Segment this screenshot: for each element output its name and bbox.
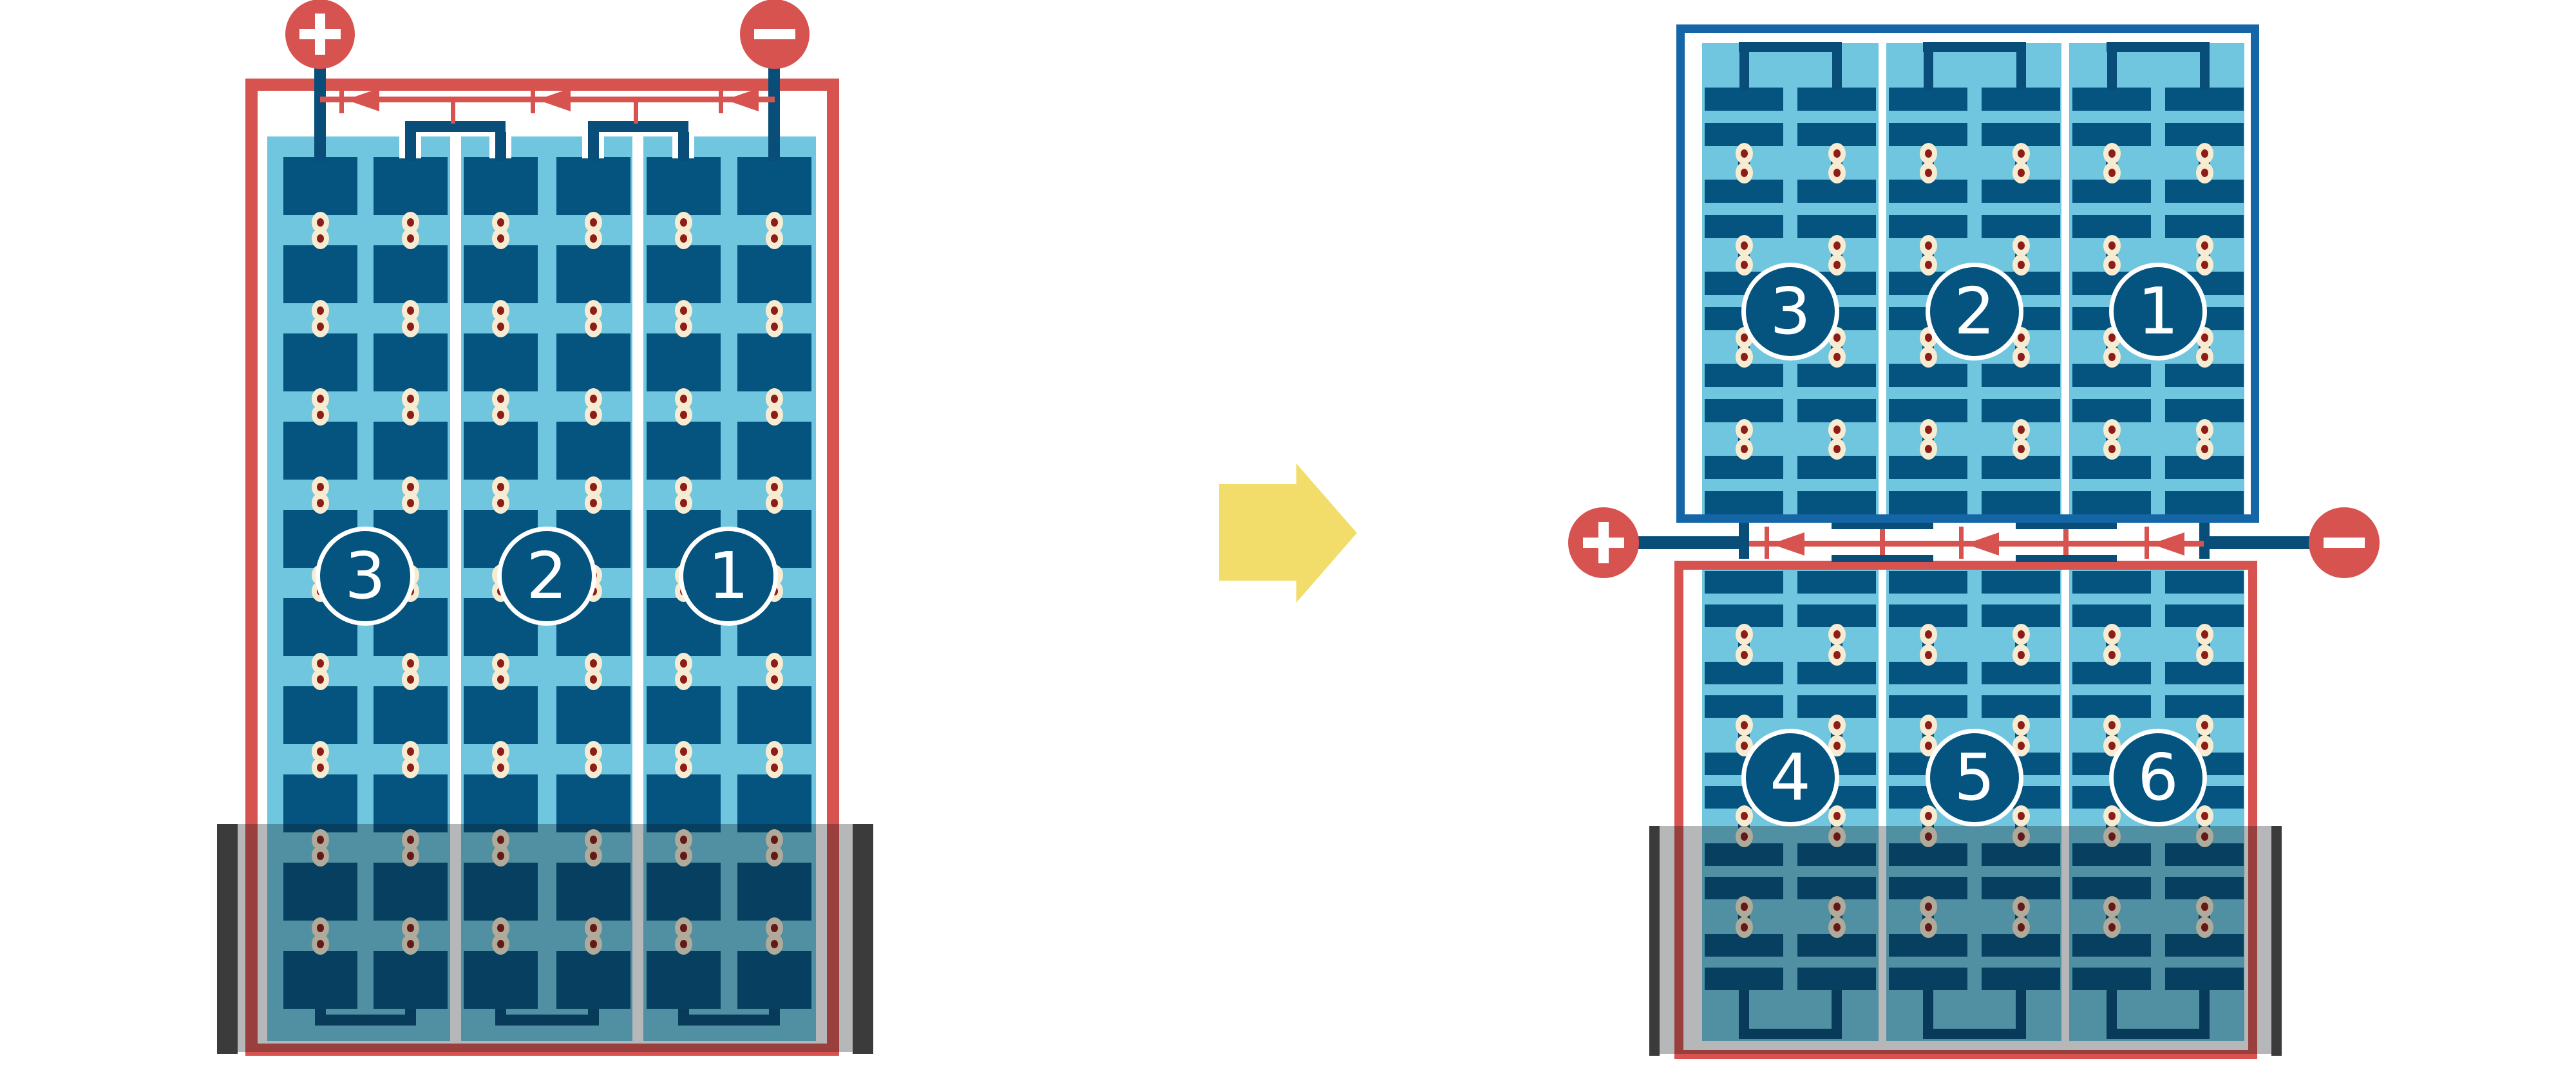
positive-terminal <box>1568 507 1639 578</box>
negative-terminal <box>2309 507 2380 578</box>
junction-end-tab <box>1739 523 1749 559</box>
string-number-label: 3 <box>345 544 386 608</box>
top-interconnect-bar <box>588 121 688 132</box>
negative-terminal <box>740 0 810 69</box>
string-number-label: 1 <box>708 544 749 608</box>
shade-bar-icon <box>217 824 238 1054</box>
top-interconnect-leg <box>2016 52 2026 90</box>
bypass-diode-icon <box>344 88 379 111</box>
diode-cathode-tick <box>1959 527 1964 559</box>
string-number-label: 2 <box>526 544 567 608</box>
bus-stub <box>451 102 455 124</box>
string-number-badge: 4 <box>1741 729 1839 827</box>
top-interconnect-bar <box>405 121 506 132</box>
diode-cathode-tick <box>719 88 723 113</box>
diode-cathode-tick <box>531 88 535 113</box>
string-number-badge: 3 <box>316 527 415 626</box>
transform-arrow <box>1219 484 1296 581</box>
transform-arrow-head <box>1296 464 1359 603</box>
shade-overlay <box>217 824 873 1052</box>
junction-series-tab-top <box>2016 523 2117 529</box>
bypass-diode-icon <box>1769 532 1804 556</box>
string-number-label: 6 <box>2137 745 2179 810</box>
top-interconnect-leg <box>1739 52 1749 90</box>
top-interconnect-leg <box>678 132 689 161</box>
bypass-diode-icon <box>535 88 571 111</box>
string-number-badge: 1 <box>679 527 778 626</box>
string-number-badge: 3 <box>1741 263 1839 361</box>
minus-icon <box>754 14 795 55</box>
string-number-badge: 1 <box>2109 263 2207 361</box>
string-number-badge: 6 <box>2109 729 2207 827</box>
negative-lead <box>768 64 780 161</box>
top-interconnect-leg <box>1924 52 1933 90</box>
positive-terminal <box>285 0 355 69</box>
diode-cathode-tick <box>2145 527 2149 559</box>
string-number-badge: 2 <box>1926 263 2023 361</box>
shade-bar-icon <box>2271 826 2282 1056</box>
positive-lead <box>314 64 326 161</box>
string-number-label: 4 <box>1770 745 1811 810</box>
junction-series-tab-bottom <box>1832 555 1933 562</box>
top-interconnect-leg <box>1832 52 1842 90</box>
shade-bar-icon <box>853 824 873 1054</box>
string-number-label: 3 <box>1770 279 1811 344</box>
bypass-diode-icon <box>723 88 759 111</box>
negative-lead <box>2209 536 2311 549</box>
top-interconnect-bar <box>1923 42 2026 52</box>
diagram-canvas: 321321456 <box>0 0 2576 1068</box>
plus-icon <box>1583 522 1624 563</box>
bypass-diode-icon <box>2149 532 2184 556</box>
junction-series-tab-bottom <box>2016 555 2117 562</box>
top-interconnect-bar <box>1739 42 1842 52</box>
diode-cathode-tick <box>1765 527 1769 559</box>
bus-stub <box>634 102 638 124</box>
plus-icon <box>299 14 341 55</box>
bus-stub <box>2063 529 2069 555</box>
top-interconnect-leg <box>2200 52 2210 90</box>
top-interconnect-leg <box>495 132 506 161</box>
string-number-label: 1 <box>2137 279 2179 344</box>
positive-lead <box>1638 536 1739 549</box>
top-interconnect-leg <box>2107 52 2117 90</box>
bus-stub <box>1880 529 1885 555</box>
minus-icon <box>2324 522 2365 563</box>
top-interconnect-leg <box>588 132 599 161</box>
string-number-label: 5 <box>1954 745 1995 810</box>
bypass-diode-icon <box>1964 532 1999 556</box>
string-number-label: 2 <box>1954 279 1995 344</box>
diode-cathode-tick <box>339 88 344 113</box>
string-number-badge: 5 <box>1926 729 2023 827</box>
string-number-badge: 2 <box>497 527 596 626</box>
shade-overlay <box>1649 826 2282 1054</box>
top-interconnect-bar <box>2107 42 2210 52</box>
shade-bar-icon <box>1649 826 1660 1056</box>
junction-series-tab-top <box>1832 523 1933 529</box>
top-interconnect-leg <box>405 132 416 161</box>
